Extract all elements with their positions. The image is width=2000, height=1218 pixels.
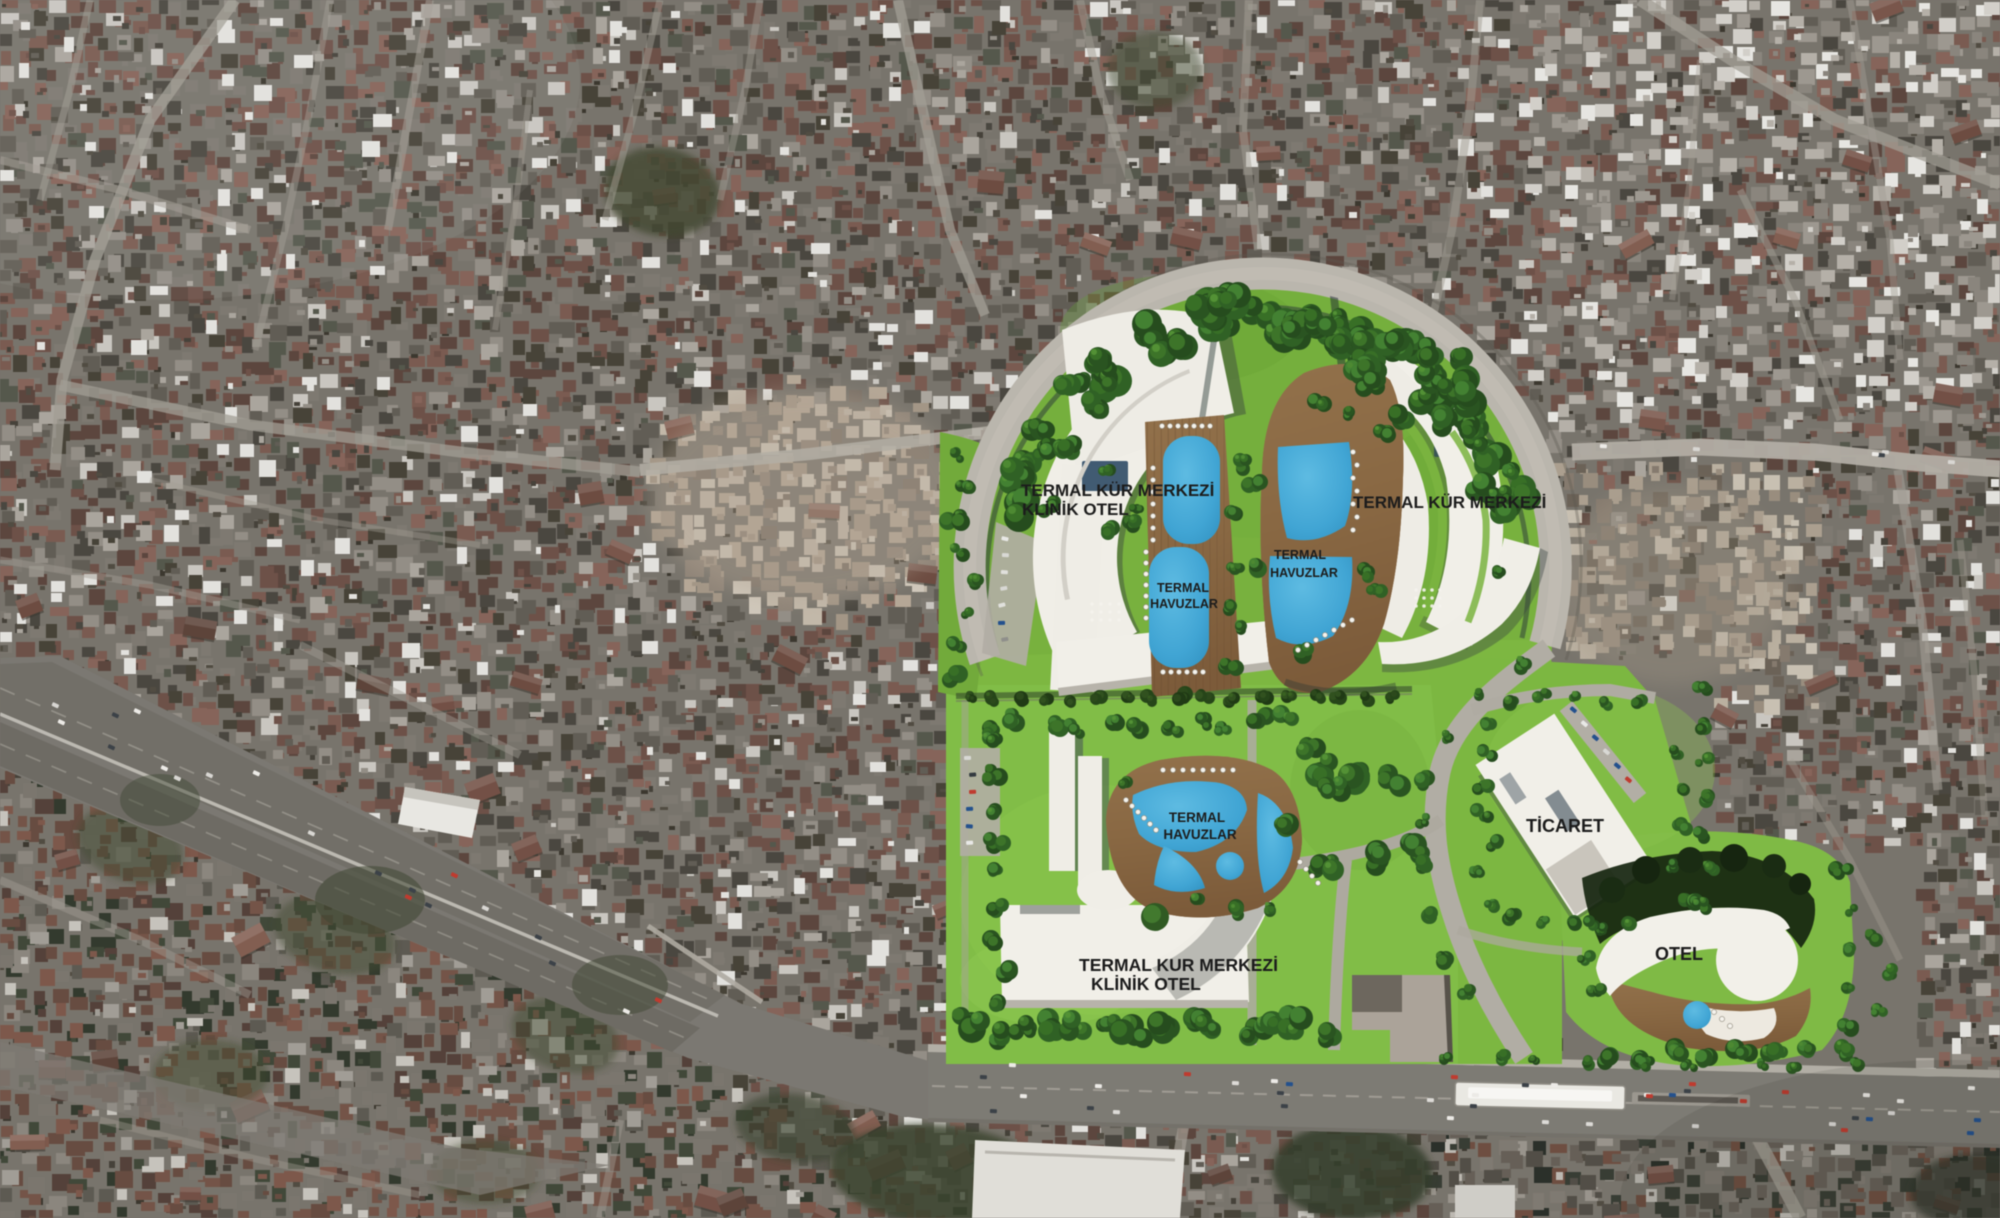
svg-text:TERMAL: TERMAL	[1157, 581, 1209, 595]
svg-text:TERMAL KUR MERKEZİ: TERMAL KUR MERKEZİ	[1079, 955, 1278, 975]
svg-text:HAVUZLAR: HAVUZLAR	[1163, 827, 1236, 842]
svg-text:TİCARET: TİCARET	[1526, 816, 1604, 836]
svg-text:TERMAL KÜR MERKEZİ: TERMAL KÜR MERKEZİ	[1353, 493, 1546, 512]
svg-text:OTEL: OTEL	[1655, 944, 1703, 964]
svg-text:TERMAL: TERMAL	[1169, 810, 1225, 825]
svg-text:KLİNİK OTEL: KLİNİK OTEL	[1022, 500, 1129, 519]
svg-text:TERMAL: TERMAL	[1274, 548, 1326, 562]
svg-text:HAVUZLAR: HAVUZLAR	[1270, 566, 1338, 580]
svg-text:TERMAL KÜR MERKEZİ: TERMAL KÜR MERKEZİ	[1021, 481, 1214, 500]
svg-text:KLİNİK OTEL: KLİNİK OTEL	[1091, 974, 1201, 994]
svg-text:HAVUZLAR: HAVUZLAR	[1150, 597, 1218, 611]
